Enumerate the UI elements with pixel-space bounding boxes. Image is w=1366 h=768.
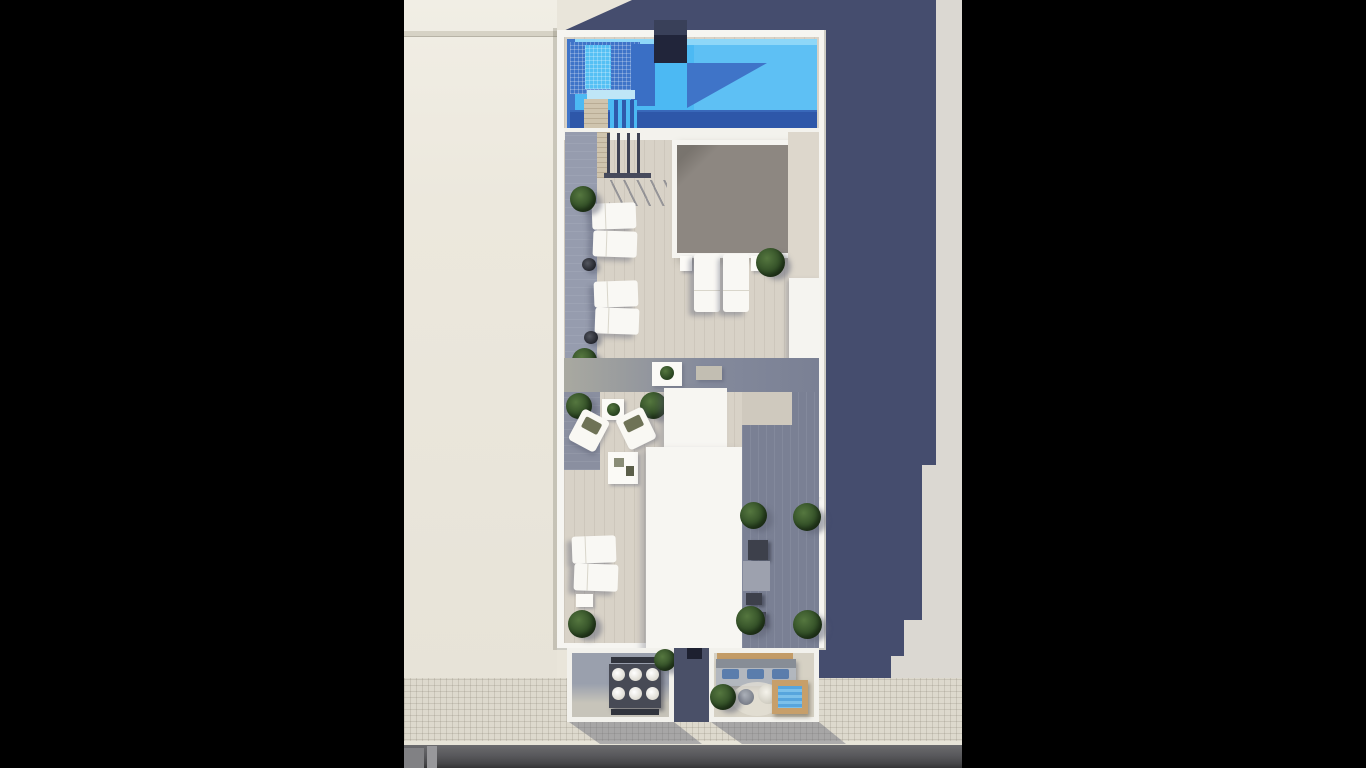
table-plant [660,366,674,380]
neighbor-parapet-line [404,31,557,37]
pool-stairs [610,100,637,128]
right-walkway [788,132,819,278]
mid-deck-band [564,358,819,392]
sun-lounger [595,307,640,335]
letterbox-stage [0,0,1366,768]
sun-lounger [593,230,638,258]
potted-plant [570,186,596,212]
place-setting [646,687,659,700]
sun-lounger [572,535,617,564]
sun-lounger [594,280,639,308]
place-setting [629,687,642,700]
ac-unit [746,593,762,605]
railing-post [637,133,640,173]
place-setting [612,687,625,700]
planter-pot [584,331,598,344]
potted-plant [710,684,736,710]
potted-plant [793,503,821,531]
sun-shelf [585,45,611,89]
potted-plant [568,610,596,638]
sun-lounger [592,202,637,230]
side-table [576,594,593,607]
sun-lounger [694,254,720,312]
railing-post [617,133,620,173]
railing-bar [604,173,651,178]
table-plant [607,403,620,416]
railing-post [607,133,610,173]
potted-plant [736,606,765,635]
pouf [738,689,754,705]
table-decor [614,458,624,467]
sun-lounger [574,563,619,592]
dining-chair [611,709,659,715]
side-table [680,256,692,271]
sunlit-deck-corner [742,392,792,425]
pool-feature-wall [654,20,687,63]
potted-plant [654,649,676,671]
curb-ramp-mark [427,746,437,768]
courtyard-skylight [672,140,796,258]
table-decor [626,466,634,476]
curb-ramp-mark [404,748,424,768]
facade-recess [674,648,709,722]
railing-post [627,133,630,173]
roof-core [646,447,742,650]
place-setting [646,668,659,681]
ac-pad [743,561,770,591]
dining-chair [611,657,659,663]
plunge-tub [772,680,808,714]
ac-unit [748,540,768,560]
place-setting [629,668,642,681]
render-photo [404,0,962,768]
potted-plant [756,248,785,277]
pool-wood-deck [584,99,608,129]
sun-lounger [723,254,749,312]
neighbor-rooftop [404,0,557,678]
place-setting [612,668,625,681]
potted-plant [740,502,767,529]
street [404,745,962,768]
roof-core [664,388,727,447]
planter-pot [582,258,596,271]
potted-plant [793,610,822,639]
pool-step [587,90,635,99]
deck-bench [696,366,722,380]
recessed-door [687,648,702,659]
